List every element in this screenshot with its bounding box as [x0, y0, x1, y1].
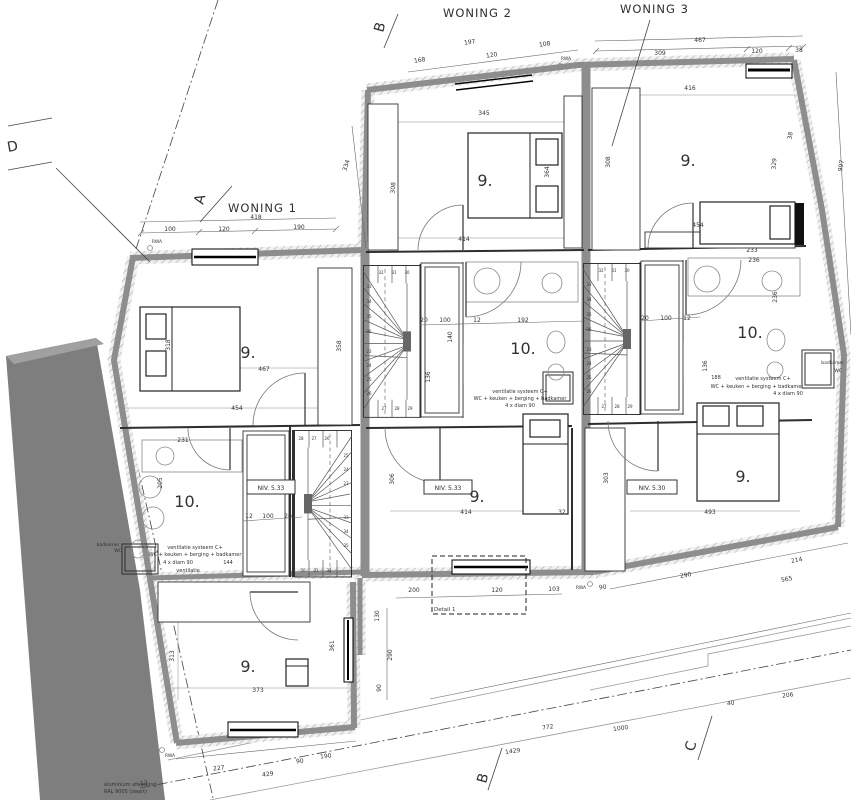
stair-step-number: 32 [378, 270, 384, 275]
room-label: 9. [477, 171, 492, 190]
door-w3-bathroom [686, 260, 741, 315]
stair-step-number: 23 [343, 481, 349, 486]
woning2-title: WONING 2 [443, 6, 512, 20]
section-c-label: C [682, 739, 700, 753]
dim-label: 32 [558, 509, 566, 516]
dim-label: 997 [837, 159, 846, 172]
annotation: badkamer [97, 542, 120, 548]
dim-label: 20 [420, 317, 428, 324]
closet-w3-hall [641, 261, 683, 414]
stair-step-number: 32 [598, 268, 604, 273]
annotation: ventilatie [176, 568, 199, 574]
closet-w2-bedroom-left [368, 104, 398, 250]
annotation: 144 [223, 560, 233, 566]
dim-label: 214 [790, 556, 803, 565]
stair-step-number: 31 [391, 270, 397, 275]
stair-step-number: 29 [407, 406, 413, 411]
dim-label: 200 [408, 587, 420, 594]
annotation: 4 x diam 90 [163, 560, 193, 566]
dim-label: 290 [387, 649, 394, 661]
dim-label: 38 [786, 131, 794, 140]
section-d-label: D [6, 138, 19, 156]
street-lines [140, 618, 851, 800]
rwa-drain-icon [588, 582, 593, 587]
floor-plan-page: { "colors": { "wall_core": "#8d8d8d", "h… [0, 0, 851, 800]
dim-label: 454 [692, 222, 704, 229]
level-tag-w1: NIV. 5.33 [258, 485, 285, 492]
annotation: ventilatie systeem C+ [492, 389, 547, 395]
bed-w3 [700, 202, 795, 244]
dim-label: 565 [780, 575, 793, 584]
section-b-bottom-label: B [474, 772, 492, 785]
dim-label: 197 [464, 38, 477, 47]
stair-step-number: 32 [326, 568, 332, 573]
stair-step-number: 33 [366, 284, 372, 289]
closet-w3-bedroom [592, 88, 640, 250]
dim-label: 233 [746, 247, 758, 254]
dim-label: 103 [548, 586, 560, 593]
dim-label: 493 [704, 509, 716, 516]
dim-label: 140 [447, 331, 454, 343]
dim-label: 90 [599, 583, 608, 591]
stair-step-number: 26 [324, 436, 330, 441]
annotation: ventilatie systeem C+ [735, 376, 790, 382]
stair-step-number: 36 [366, 329, 372, 334]
dim-label: 100 [262, 513, 274, 520]
window-w1-bottom [228, 722, 298, 737]
room-label: 9. [680, 151, 695, 170]
stair-step-number: 35 [343, 543, 349, 548]
dim-label: 318 [165, 339, 172, 351]
stair-step-number: 30 [624, 268, 630, 273]
washbasin-icon [694, 266, 720, 292]
stair-step-number: 29 [627, 404, 633, 409]
dim-label: 231 [177, 437, 189, 444]
annotation: RAL 9005 (zwart) [104, 789, 147, 795]
dim-label: 334 [341, 159, 351, 172]
annotation: WC [114, 548, 122, 554]
dim-label: 206 [782, 691, 794, 700]
dim-label: 40 [727, 699, 736, 707]
dim-label: 12 [683, 315, 691, 322]
woning3-title: WONING 3 [620, 2, 689, 16]
rwa-label: RWA [576, 585, 587, 591]
dim-label: 329 [771, 158, 779, 170]
dim-label: 90 [376, 684, 383, 692]
window-w3-top [746, 64, 792, 78]
room-label: 10. [174, 492, 199, 511]
door-w2-bathroom [466, 262, 521, 317]
dim-label: 20 [641, 315, 649, 322]
window-w2-bottom [452, 560, 530, 574]
dim-label: 100 [439, 317, 451, 324]
staircase-woning2 [363, 266, 421, 418]
dim-label: 358 [336, 340, 343, 352]
room-label: 9. [469, 487, 484, 506]
annotation: WC + keuken + berging + badkamer [474, 396, 568, 402]
dim-label: 303 [603, 472, 610, 484]
dim-label: 364 [544, 166, 551, 178]
dim-label: 454 [231, 405, 243, 412]
stair-step-number: 24 [366, 363, 372, 368]
stair-step-number: 30 [404, 270, 410, 275]
stair-step-number: 27 [381, 406, 387, 411]
annotation: ventilatie systeem C+ [167, 545, 222, 551]
stair-step-number: 33 [586, 282, 592, 287]
window-w1-side [344, 618, 353, 682]
woning1-title: WONING 1 [228, 201, 297, 215]
stair-step-number: 31 [313, 568, 319, 573]
dim-label: 416 [684, 85, 696, 92]
dim-label: 1429 [505, 747, 521, 756]
dim-label: 130 [374, 610, 381, 622]
annotation: 4 x diam 90 [505, 403, 535, 409]
stair-step-number: 23 [586, 347, 592, 352]
dim-label: 290 [679, 571, 692, 580]
closet-w1-bedroom [318, 268, 352, 425]
level-tag-w2: NIV. 5.33 [435, 485, 462, 492]
rwa-drain-icon [148, 246, 153, 251]
stair-step-number: 34 [586, 297, 592, 302]
toilet-icon [547, 331, 565, 353]
stair-step-number: 35 [366, 314, 372, 319]
stair-step-number: 27 [311, 436, 317, 441]
annotation: 4 x diam 90 [773, 391, 803, 397]
toilet-icon [767, 329, 785, 351]
dim-label: 108 [539, 40, 552, 49]
dim-label: 38 [795, 47, 803, 54]
dim-label: 100 [660, 315, 672, 322]
dim-label: 120 [751, 48, 763, 55]
dim-label: 236 [772, 291, 779, 303]
stair-step-number: 26 [586, 389, 592, 394]
annotation: WC [834, 368, 842, 374]
bed-w3-lower [697, 403, 779, 501]
stair-step-number: 33 [343, 515, 349, 520]
rwa-label: RWA [165, 753, 176, 759]
room-label: 9. [735, 467, 750, 486]
window-w1-top [192, 249, 258, 265]
dim-label: 190 [293, 224, 305, 231]
staircase-woning3 [583, 264, 641, 415]
dim-label: 20 [284, 513, 292, 520]
dim-label: 188 [711, 375, 721, 381]
stair-step-number: 23 [366, 349, 372, 354]
dim-label: 12 [245, 513, 253, 520]
stair-step-number: 28 [298, 436, 304, 441]
dim-label: 190 [320, 752, 332, 760]
dim-label: 467 [258, 366, 270, 373]
dim-label: 467 [694, 37, 706, 44]
dim-label: 308 [605, 156, 612, 168]
washbasin-icon [156, 447, 174, 465]
dim-label: 192 [517, 317, 529, 324]
stair-step-number: 25 [343, 453, 349, 458]
washbasin-icon [542, 273, 562, 293]
dim-label: 1000 [613, 724, 629, 733]
dim-label: 373 [252, 687, 264, 694]
dim-label: 12 [473, 317, 481, 324]
dim-label: 418 [250, 214, 262, 221]
side-table-w1-bottom [286, 659, 308, 686]
room-label: 9. [240, 657, 255, 676]
rwa-label: RWA [561, 56, 572, 62]
wardrobe-w1-bottom-room [158, 582, 310, 622]
dim-label: 205 [157, 477, 164, 489]
room-label: 10. [737, 323, 762, 342]
annotation: WC + keuken + berging + badkamer [711, 384, 805, 390]
stair-step-number: 24 [343, 467, 349, 472]
dim-label: 120 [218, 226, 230, 233]
stair-step-number: 28 [394, 406, 400, 411]
room-label: 10. [510, 339, 535, 358]
stair-step-number: 34 [343, 529, 349, 534]
section-b-top-label: B [371, 21, 389, 34]
dim-label: 136 [425, 371, 432, 383]
washbasin-icon [474, 268, 500, 294]
dim-label: 100 [164, 226, 176, 233]
dim-label: 414 [460, 509, 472, 516]
stair-step-number: 34 [366, 299, 372, 304]
dim-label: 308 [390, 182, 398, 194]
dim-label: 90 [296, 758, 305, 766]
closet-w1-hall [243, 431, 289, 576]
bed-w2-lower [523, 414, 568, 514]
stair-step-number: 25 [366, 377, 372, 382]
closet-w2-hall [421, 263, 463, 417]
dim-label: 313 [169, 650, 176, 662]
dim-label: 120 [491, 587, 503, 594]
stair-step-number: 31 [611, 268, 617, 273]
dim-label: 414 [458, 236, 470, 243]
dim-label: 429 [262, 770, 274, 778]
annotation: Detail 1 [434, 607, 455, 613]
room-label: 9. [240, 343, 255, 362]
floor-plan-drawing: NIV. 5.33 NIV. 5.33 NIV. 5.30 WONING 2 W… [0, 0, 851, 800]
door-w1-bathroom [188, 428, 230, 470]
annotation: aluminium afwerking [104, 782, 157, 788]
dim-label: 772 [542, 723, 554, 732]
section-a-label: A [191, 192, 209, 206]
stair-step-number: 28 [614, 404, 620, 409]
neighbor-building-band [6, 338, 165, 800]
stair-step-number: 25 [586, 375, 592, 380]
window-w3-side [795, 203, 804, 245]
dim-label: 120 [486, 51, 499, 60]
washbasin-icon [762, 271, 782, 291]
stair-step-number: 27 [601, 404, 607, 409]
closet-w2-bedroom-right [564, 96, 582, 248]
stair-step-number: 30 [300, 568, 306, 573]
annotation: WC + keuken + berging + badkamer [149, 552, 243, 558]
dim-label: 345 [478, 110, 490, 117]
dim-label: 309 [654, 50, 666, 57]
closet-between-lower-rooms [585, 428, 625, 571]
dim-label: 236 [748, 257, 760, 264]
level-tag-w3: NIV. 5.30 [639, 485, 666, 492]
annotation: badkamer [821, 360, 844, 366]
door-w1-bedroom [253, 373, 305, 425]
stair-step-number: 24 [586, 361, 592, 366]
door-w2-bedroom [418, 205, 463, 250]
dim-label: 168 [414, 56, 427, 65]
rwa-drain-icon [160, 748, 165, 753]
dim-label: 361 [329, 640, 336, 652]
stair-step-number: 35 [586, 312, 592, 317]
rwa-label: RWA [152, 239, 163, 245]
dim-label: 227 [213, 764, 225, 772]
dim-label: 136 [702, 360, 709, 372]
dim-label: 306 [389, 473, 396, 485]
bed-w1 [140, 307, 240, 391]
stair-step-number: 26 [366, 391, 372, 396]
stair-step-number: 36 [586, 327, 592, 332]
